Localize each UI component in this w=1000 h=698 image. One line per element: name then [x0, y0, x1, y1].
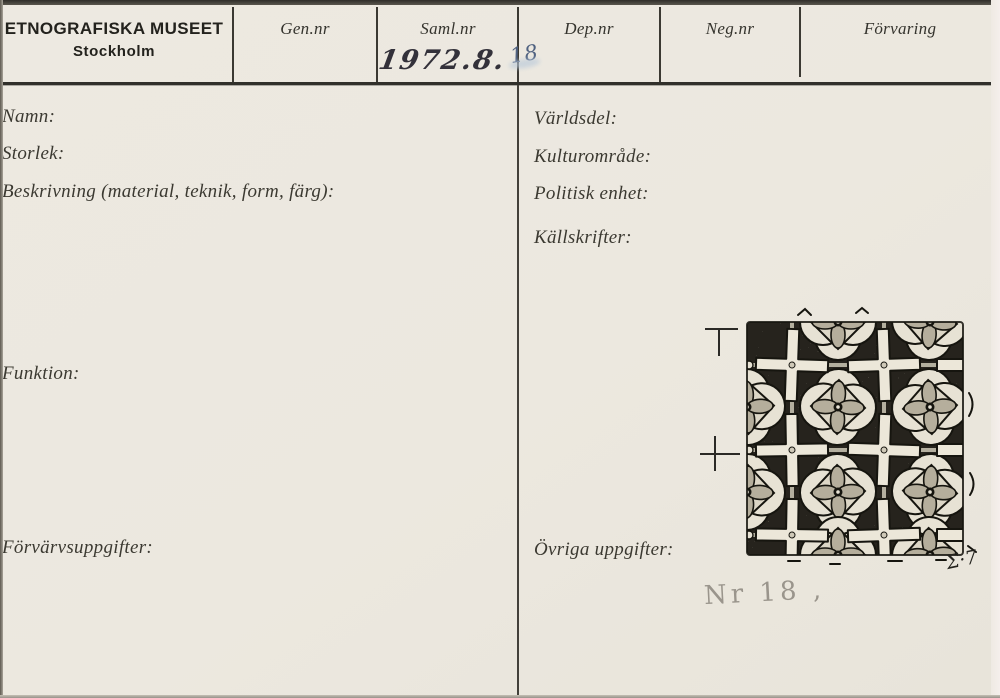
dimension-marks — [700, 329, 740, 471]
scan-edge-right — [991, 0, 1000, 698]
field-label-beskrivning: Beskrivning (material, teknik, form, fär… — [2, 181, 335, 203]
header-col-dep-nr: Dep.nr — [529, 19, 649, 39]
field-label-forvarvsuppgifter: Förvärvsuppgifter: — [2, 537, 153, 559]
header-col-forvaring: Förvaring — [830, 19, 970, 39]
field-label-politisk-enhet: Politisk enhet: — [534, 183, 649, 205]
header-divider-4 — [659, 7, 661, 83]
institution-city: Stockholm — [4, 43, 224, 60]
header-divider-5 — [799, 7, 801, 77]
field-label-varldsdel: Världsdel: — [534, 108, 617, 130]
institution-name: ETNOGRAFISKA MUSEET — [4, 19, 224, 39]
institution-block: ETNOGRAFISKA MUSEET Stockholm — [4, 19, 224, 60]
field-label-ovriga-uppgifter: Övriga uppgifter: — [534, 539, 674, 561]
field-label-kallskrifter: Källskrifter: — [534, 227, 632, 249]
field-label-storlek: Storlek: — [2, 143, 65, 165]
header-col-saml-nr: Saml.nr — [388, 19, 508, 39]
scan-edge-top — [0, 0, 1000, 5]
field-label-namn: Namn: — [2, 106, 55, 128]
saml-nr-pencil-value: 18 — [508, 40, 540, 68]
header-col-gen-nr: Gen.nr — [245, 19, 365, 39]
center-column-rule — [517, 85, 519, 698]
field-label-kulturomrade: Kulturområde: — [534, 146, 651, 168]
field-label-funktion: Funktion: — [2, 363, 80, 385]
saml-nr-entry: 1972.8. 18 — [379, 45, 538, 76]
scan-edge-left — [0, 0, 3, 698]
header-divider-1 — [232, 7, 234, 83]
header-col-neg-nr: Neg.nr — [670, 19, 790, 39]
saml-nr-ink-value: 1972.8. — [376, 45, 508, 76]
header-bottom-rule — [0, 82, 993, 85]
object-number-note: Nr 18 , — [703, 575, 825, 611]
catalog-card: ETNOGRAFISKA MUSEET Stockholm Gen.nr Sam… — [0, 0, 1000, 698]
